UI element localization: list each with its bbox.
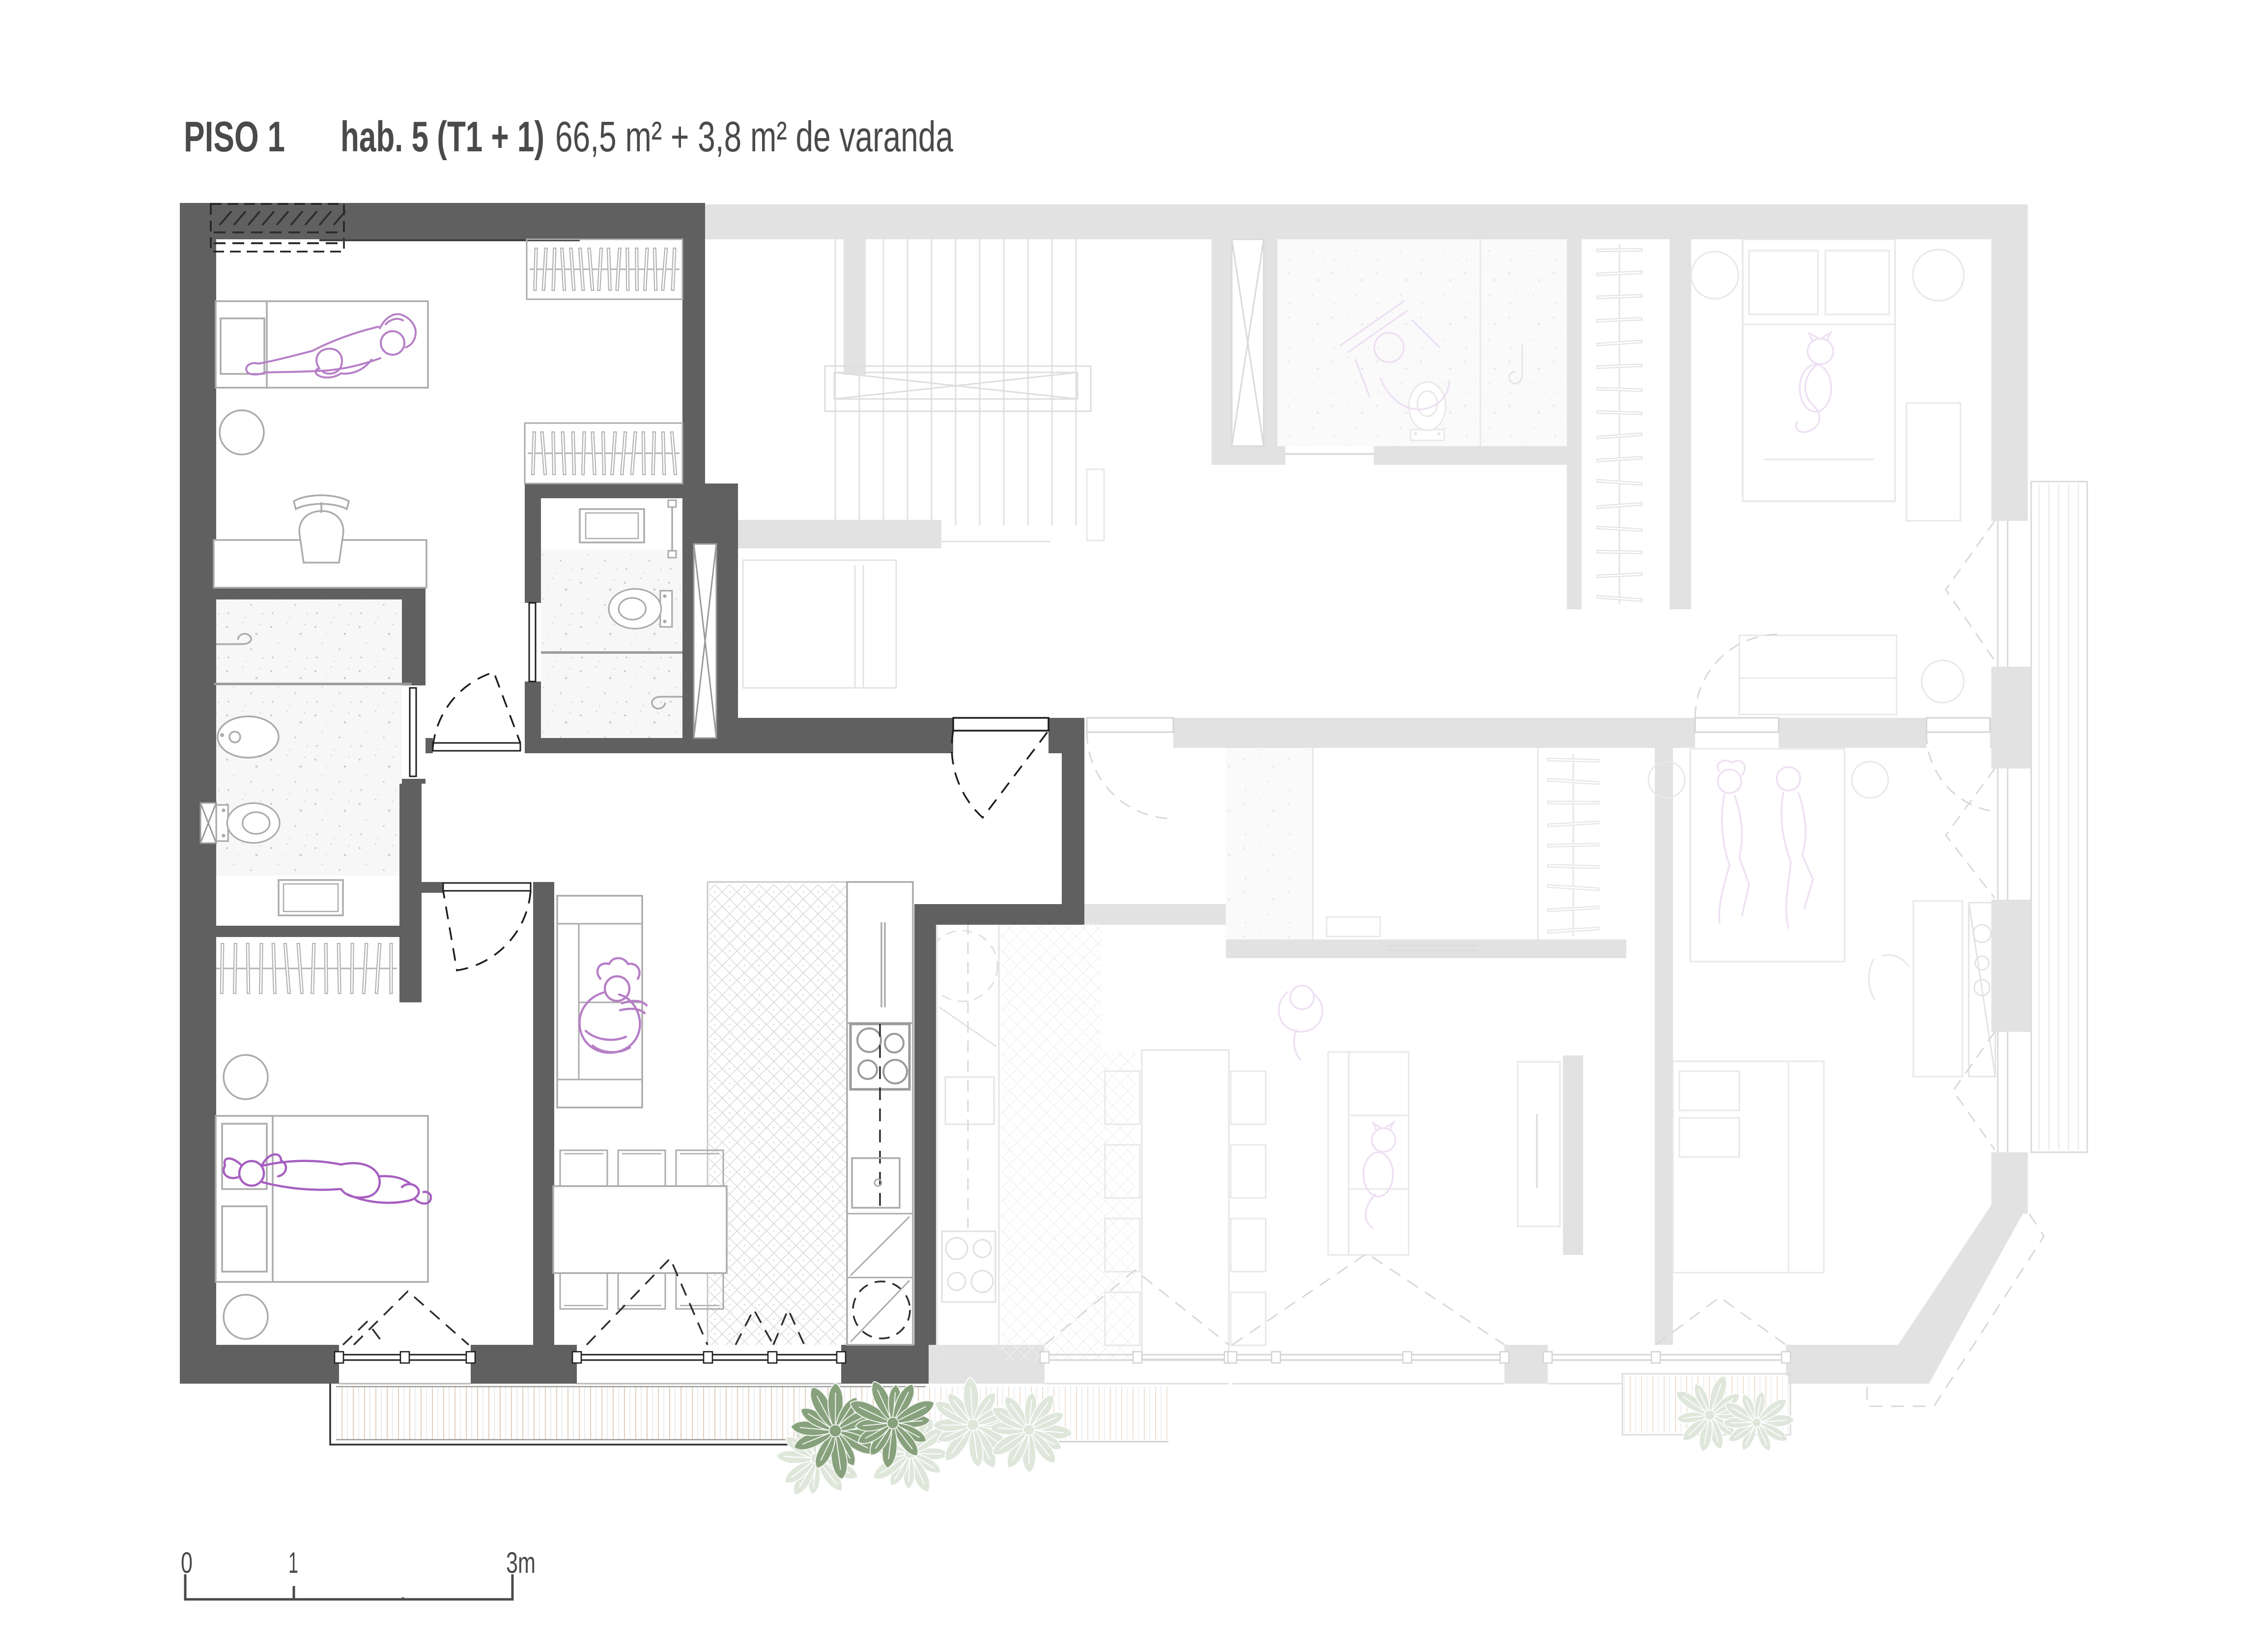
svg-text:3m: 3m: [506, 1546, 536, 1579]
svg-text:1: 1: [288, 1546, 298, 1579]
svg-text:0: 0: [181, 1546, 193, 1579]
svg-text:PISO 1: PISO 1: [184, 113, 285, 161]
svg-text:66,5 m² + 3,8 m² de varanda: 66,5 m² + 3,8 m² de varanda: [555, 113, 953, 161]
svg-text:hab. 5 (T1 + 1): hab. 5 (T1 + 1): [340, 113, 544, 161]
